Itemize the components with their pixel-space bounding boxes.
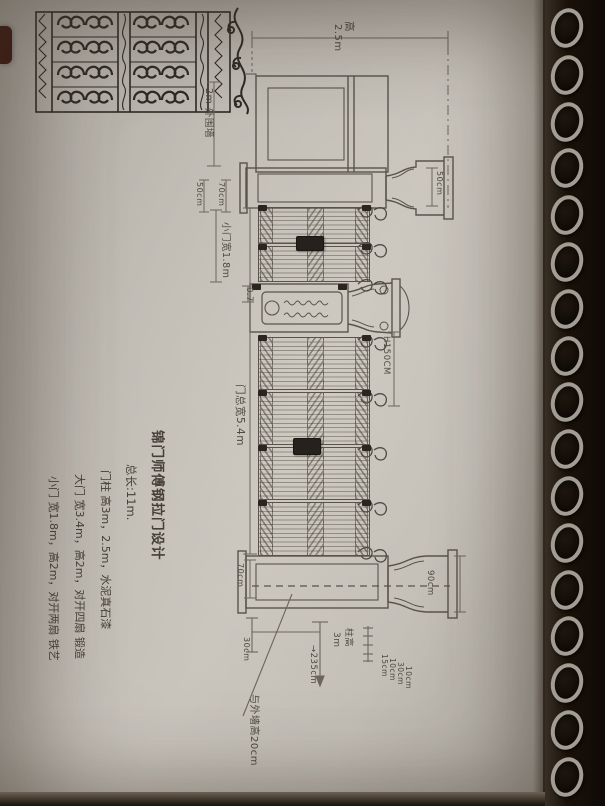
leader-note: 与外墙高20cm [248,694,258,766]
hinge-pad [362,244,371,250]
hinge-pad [338,284,347,290]
binding-loop [547,5,588,52]
dim-course-4: 10cm [405,666,413,689]
photo-bottom-shadow [0,792,545,806]
binding-loop [547,707,588,754]
dim-course-3: 30cm [397,662,405,685]
hinge-pad [258,244,267,250]
sketchbook-page: 高 2.5m 2m 外围墙 50cm 70cm 50cm 小门宽1.8m 0.7… [0,0,545,806]
title-block: 锦门师傅钢拉门设计 总长:11m. 门柱 高3m，2.5m，水泥真石漆 大门 宽… [40,430,170,686]
spec-pillars: 门柱 高3m，2.5m，水泥真石漆 [92,430,118,686]
panel-scroll-band [260,393,273,444]
gate-lock-main [293,438,321,455]
dim-base-width: 90cm [426,570,435,596]
dim-pillar-height-val: 3m [331,632,340,648]
hinge-pad [258,390,267,396]
pillar-middle [250,279,409,337]
binding-loop [547,52,588,99]
notebook-photo: 高 2.5m 2m 外围墙 50cm 70cm 50cm 小门宽1.8m 0.7… [0,0,605,806]
dim-base-bracket: 70cm [236,563,244,587]
plaque-seal [265,301,279,315]
panel-scroll-band [355,338,368,389]
hinge-pad [258,205,267,211]
dim-outer-wall: 2m 外围墙 [204,88,214,138]
panel-scroll-band [260,448,273,499]
dim-ground-offset: 30cm [242,637,250,661]
dim-course-1: 15cm [381,654,389,677]
panel-scroll-band [355,503,368,555]
gate-lock-small [296,236,324,251]
spec-small-gate: 小门 宽1.8m，高2m，对开两扇 铁艺 [40,430,66,686]
binding-loop [547,754,588,801]
hinge-pad [258,500,267,506]
binding-loop [547,473,588,520]
fence-panel [258,502,370,556]
spec-total-length: 总长:11m. [118,430,144,686]
binding-loop [547,286,588,333]
binding-loop [547,379,588,426]
panel-scroll-band [355,208,368,243]
dim-pillar-width-2: 70cm [217,182,225,206]
dim-fence-height: H150CM [382,336,391,375]
binding-loop [547,98,588,145]
fence-panel [258,337,370,390]
dim-course-2: 10cm [389,658,397,681]
panel-scroll-band [355,448,368,499]
dim-depth: →235cm [309,645,318,684]
panel-scroll-band [260,208,273,243]
binding-loop [547,239,588,286]
panel-scroll-band [260,247,273,281]
binding-loop [547,426,588,473]
panel-scroll-band [307,448,324,499]
hinge-pad [362,445,371,451]
hinge-pad [362,390,371,396]
panel-scroll-band [260,503,273,555]
dim-cap-width: 50cm [435,171,443,195]
binding-loop [547,520,588,567]
ornament-study-sketch [36,12,230,112]
dim-pillar-height-zh: 柱高 [343,628,352,647]
hinge-pad [362,335,371,341]
binding-loop [547,613,588,660]
plaque-script [284,301,328,305]
panel-scroll-band [307,338,324,389]
spiral-binding [543,0,605,806]
hinge-pad [362,500,371,506]
wall-panel [246,74,388,172]
binding-loop [547,660,588,707]
dim-gate-total-width: 门总宽5.4m [235,384,246,446]
title-line: 锦门师傅钢拉门设计 [144,430,170,686]
vine-flourish-sketch [228,8,248,114]
panel-scroll-band [307,503,324,555]
dim-pillar-width-1: 50cm [195,182,203,206]
hinge-pad [362,205,371,211]
panel-scroll-band [260,338,273,389]
fence-panel [258,246,370,282]
panel-scroll-band [355,393,368,444]
binding-loop [547,145,588,192]
dim-offset: 0.7 [245,287,254,302]
dim-small-gate-width: 小门宽1.8m [221,222,231,278]
binding-loop [547,566,588,613]
dim-clear-height-val: 2.5m [332,24,342,52]
binding-loop [547,332,588,379]
photo-edge-mark [0,26,12,64]
name-plaque [262,292,342,324]
binding-loop [547,192,588,239]
panel-scroll-band [307,393,324,444]
panel-scroll-band [355,247,368,281]
panel-scroll-band [307,247,324,281]
hinge-pad [258,445,267,451]
hinge-pad [258,335,267,341]
dim-clear-height-zh: 高 [344,21,355,32]
spec-main-gate: 大门 宽3.4m，高2m，对开四扇 锻造 [66,430,92,686]
